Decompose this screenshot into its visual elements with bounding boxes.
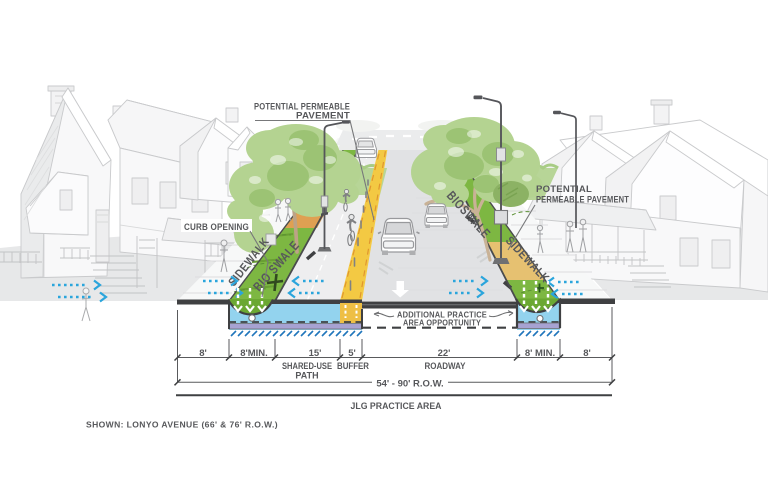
svg-text:PAVEMENT: PAVEMENT — [296, 111, 350, 121]
svg-text:SHOWN: LONYO AVENUE (66' & 76': SHOWN: LONYO AVENUE (66' & 76' R.O.W.) — [86, 420, 278, 430]
svg-text:PERMEABLE PAVEMENT: PERMEABLE PAVEMENT — [536, 195, 629, 205]
svg-text:AREA OPPORTUNITY: AREA OPPORTUNITY — [403, 318, 481, 328]
svg-text:POTENTIAL: POTENTIAL — [536, 184, 592, 194]
svg-text:PATH: PATH — [295, 371, 318, 381]
svg-text:8' MIN.: 8' MIN. — [525, 348, 555, 359]
svg-text:8': 8' — [583, 348, 591, 359]
svg-text:BUFFER: BUFFER — [337, 361, 370, 371]
svg-text:5': 5' — [348, 348, 356, 359]
svg-text:8'MIN.: 8'MIN. — [240, 348, 268, 359]
svg-text:22': 22' — [438, 348, 451, 359]
svg-text:54' - 90' R.O.W.: 54' - 90' R.O.W. — [376, 379, 443, 390]
svg-text:8': 8' — [199, 348, 207, 359]
svg-text:ROADWAY: ROADWAY — [425, 361, 466, 371]
svg-text:15': 15' — [309, 348, 322, 359]
svg-text:SHARED-USE: SHARED-USE — [282, 361, 332, 371]
svg-text:CURB OPENING: CURB OPENING — [184, 222, 249, 232]
svg-text:JLG PRACTICE AREA: JLG PRACTICE AREA — [351, 401, 442, 412]
